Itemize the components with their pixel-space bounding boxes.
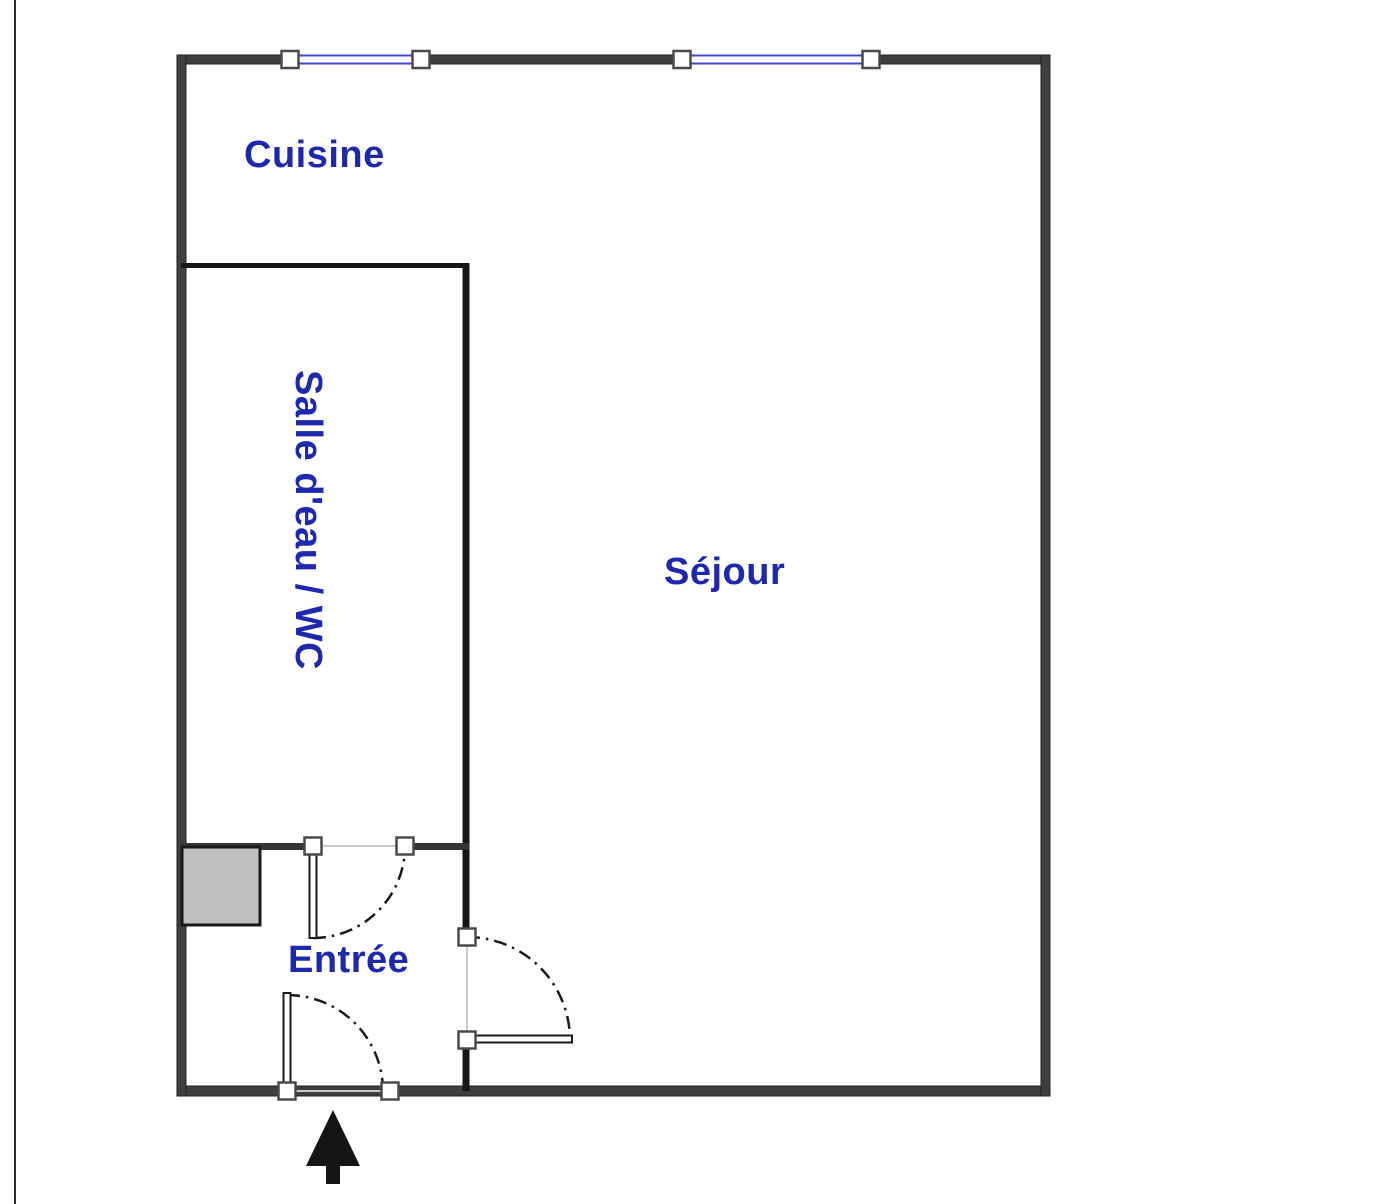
door-jamb-square bbox=[382, 1083, 399, 1100]
outer-wall-left bbox=[177, 55, 186, 1096]
floor-plan-drawing bbox=[0, 0, 1386, 1204]
window-frame-square bbox=[863, 51, 880, 68]
door-swing-arc bbox=[287, 995, 383, 1091]
page-edge-line bbox=[14, 0, 16, 1204]
window-1 bbox=[282, 51, 430, 68]
window-glazing bbox=[297, 56, 413, 64]
door-leaf bbox=[310, 854, 317, 938]
floor-plan: Cuisine Salle d'eau / WC Séjour Entrée bbox=[0, 0, 1386, 1204]
room-label-entree: Entrée bbox=[288, 938, 409, 982]
door-leaf bbox=[284, 993, 291, 1083]
door-hinge-square bbox=[279, 1083, 296, 1100]
interior-wall-salle-bottom-right bbox=[413, 843, 469, 850]
window-glazing bbox=[689, 56, 863, 64]
interior-wall-vertical-lower bbox=[463, 1048, 470, 1091]
window-frame-square bbox=[282, 51, 299, 68]
door-jamb-square bbox=[459, 929, 476, 946]
cabinet-box bbox=[182, 847, 260, 925]
outer-wall-right bbox=[1041, 55, 1050, 1096]
room-label-salle-eau-wc: Salle d'eau / WC bbox=[286, 360, 330, 680]
window-frame-square bbox=[413, 51, 430, 68]
room-label-sejour: Séjour bbox=[664, 550, 785, 594]
door-hinge-square bbox=[459, 1032, 476, 1049]
room-label-cuisine: Cuisine bbox=[244, 133, 385, 177]
door-jamb-square bbox=[397, 838, 414, 855]
door-salle-eau bbox=[305, 838, 414, 939]
interior-wall-vertical-upper bbox=[463, 263, 470, 928]
window-frame-square bbox=[674, 51, 691, 68]
interior-wall-salle-top bbox=[181, 263, 469, 268]
door-leaf bbox=[475, 1036, 572, 1043]
door-hinge-square bbox=[305, 838, 322, 855]
door-swing-arc bbox=[467, 937, 570, 1040]
door-sejour bbox=[459, 929, 573, 1049]
window-2 bbox=[674, 51, 880, 68]
entrance-arrow-icon bbox=[306, 1110, 360, 1184]
door-swing-arc bbox=[313, 846, 405, 938]
door-entrance bbox=[279, 993, 399, 1100]
